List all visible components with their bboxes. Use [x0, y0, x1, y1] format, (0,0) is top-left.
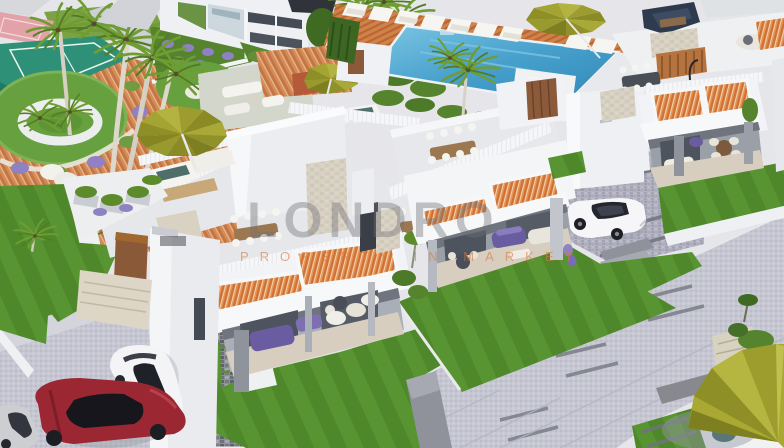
svg-text:PROPERTY IN MARKET: PROPERTY IN MARKET: [240, 249, 583, 264]
svg-text:LONDRO: LONDRO: [247, 192, 500, 248]
